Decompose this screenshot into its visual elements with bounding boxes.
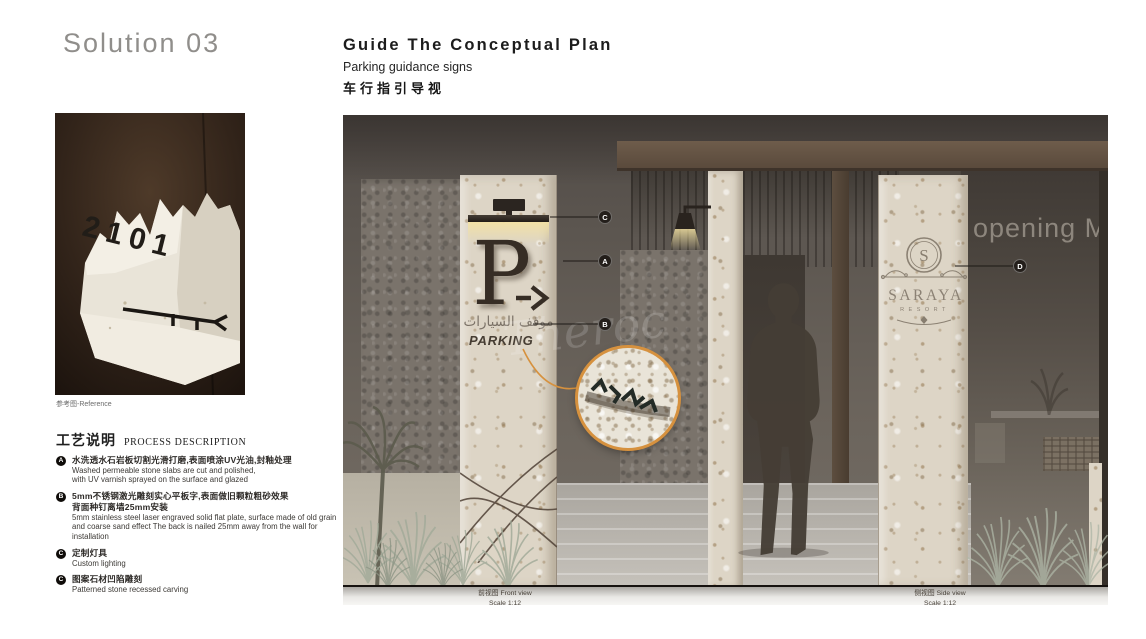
process-item-d: C 图案石材凹陷雕刻 Patterned stone recessed carv… bbox=[56, 574, 341, 594]
process-heading-en: PROCESS DESCRIPTION bbox=[124, 437, 246, 448]
reference-photo: 2101 bbox=[55, 113, 245, 395]
view-caption-bar: 前视图 Front view Scale 1:12 侧视图 Side view … bbox=[343, 585, 1108, 605]
item-text-en: Washed permeable stone slabs are cut and… bbox=[72, 466, 341, 476]
process-list: A 水洗透水石岩板切割光滑打磨,表面喷涂UV光油,封釉处理 Washed per… bbox=[56, 455, 341, 601]
marker-a: A bbox=[598, 254, 612, 268]
badge-c: C bbox=[56, 549, 66, 559]
marker-c: C bbox=[598, 210, 612, 224]
front-view-caption: 前视图 Front view Scale 1:12 bbox=[440, 589, 570, 605]
badge-a: A bbox=[56, 456, 66, 466]
item-text-en: Patterned stone recessed carving bbox=[72, 585, 341, 595]
process-heading-zh: 工艺说明 bbox=[56, 430, 116, 450]
front-view-scale: Scale 1:12 bbox=[440, 599, 570, 605]
section-title: Guide The Conceptual Plan bbox=[343, 36, 613, 55]
badge-b: B bbox=[56, 492, 66, 502]
stone-sample-image: 2101 bbox=[55, 113, 245, 395]
item-text-en: with UV varnish sprayed on the surface a… bbox=[72, 475, 341, 485]
section-header: Guide The Conceptual Plan Parking guidan… bbox=[343, 36, 613, 97]
side-view-label-zh: 侧视图 bbox=[914, 590, 934, 597]
item-text-zh: 图案石材凹陷雕刻 bbox=[72, 574, 341, 585]
item-text-zh: 5mm不锈钢激光雕刻实心平板字,表面做旧颗粒粗砂效果 bbox=[72, 491, 341, 502]
marker-b: B bbox=[598, 317, 612, 331]
side-view-scale: Scale 1:12 bbox=[875, 599, 1005, 605]
concept-rendering: opening Ma bbox=[343, 115, 1108, 605]
marker-d: D bbox=[1013, 259, 1027, 273]
badge-d: C bbox=[56, 575, 66, 585]
section-subtitle-zh: 车行指引导视 bbox=[343, 78, 613, 97]
front-view-label-en: Front view bbox=[500, 590, 531, 597]
side-view-label-en: Side view bbox=[937, 590, 966, 597]
process-item-c: C 定制灯具 Custom lighting bbox=[56, 548, 341, 568]
process-item-a: A 水洗透水石岩板切割光滑打磨,表面喷涂UV光油,封釉处理 Washed per… bbox=[56, 455, 341, 485]
item-text-zh: 背面种钉离墙25mm安装 bbox=[72, 502, 341, 513]
marker-leader-lines bbox=[343, 115, 1108, 605]
page-title: Solution 03 bbox=[63, 28, 220, 59]
item-text-en: and coarse sand effect The back is naile… bbox=[72, 522, 341, 541]
presentation-slide: Solution 03 2101 参考图-Reference 工艺说明 PROC… bbox=[0, 0, 1146, 639]
side-view-caption: 侧视图 Side view Scale 1:12 bbox=[875, 589, 1005, 605]
reference-caption: 参考图-Reference bbox=[56, 399, 112, 409]
section-subtitle-en: Parking guidance signs bbox=[343, 60, 613, 74]
item-text-zh: 水洗透水石岩板切割光滑打磨,表面喷涂UV光油,封釉处理 bbox=[72, 455, 341, 466]
item-text-en: Custom lighting bbox=[72, 559, 341, 569]
front-view-label-zh: 前视图 bbox=[478, 590, 498, 597]
process-description-heading: 工艺说明 PROCESS DESCRIPTION bbox=[56, 430, 246, 450]
item-text-zh: 定制灯具 bbox=[72, 548, 341, 559]
process-item-b: B 5mm不锈钢激光雕刻实心平板字,表面做旧颗粒粗砂效果 背面种钉离墙25mm安… bbox=[56, 491, 341, 542]
item-text-en: 5mm stainless steel laser engraved solid… bbox=[72, 513, 341, 523]
